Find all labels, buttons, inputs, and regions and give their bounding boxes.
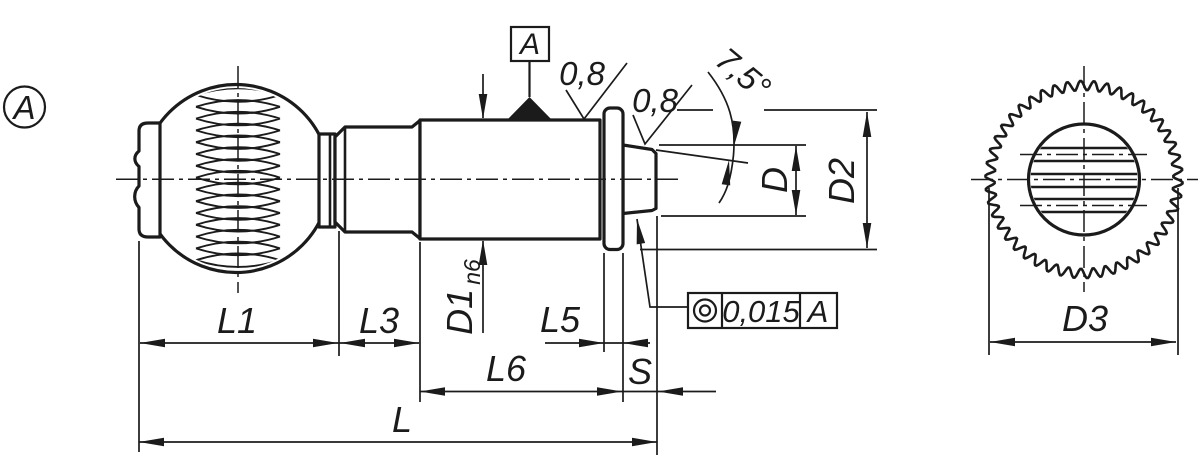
neck-collar	[319, 134, 335, 227]
dim-label-d3: D3	[1062, 298, 1108, 339]
dim-label-l: L	[392, 399, 412, 440]
technical-drawing: A 0,015 A	[0, 0, 1200, 463]
datum-label: A	[518, 28, 540, 61]
dim-label-d: D	[754, 167, 795, 193]
technical-drawing-page: A 0,015 A	[0, 0, 1200, 463]
roughness-value-pin: 0,8	[632, 82, 679, 119]
dim-label-s: S	[628, 351, 652, 392]
dim-label-l6: L6	[486, 348, 527, 389]
dim-label-l1: L1	[217, 300, 257, 341]
roughness-value-shank: 0,8	[559, 55, 606, 92]
dim-label-l5: L5	[540, 299, 581, 340]
grip-end-cap	[135, 123, 160, 237]
view-marker-label: A	[11, 89, 35, 126]
fcf-datum-reference: A	[806, 294, 829, 329]
dim-label-d2: D2	[821, 158, 862, 204]
dim-label-d1-value: D1	[439, 289, 480, 335]
dim-label-d1-fit: n6	[459, 259, 485, 285]
dim-label-l3: L3	[359, 300, 399, 341]
fcf-tolerance-value: 0,015	[722, 294, 800, 329]
